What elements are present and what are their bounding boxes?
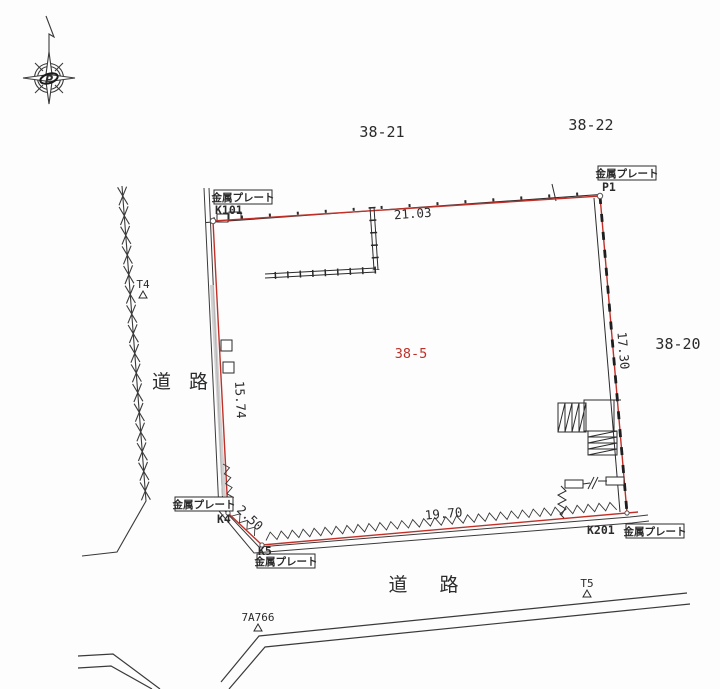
point-label-k201: K201 [587,523,615,537]
parcel-label-38-21: 38-21 [359,123,404,141]
parcel-boundary-red [213,196,638,545]
benchmark-markers: T4 T5 7A766 [136,278,593,631]
benchmark-label-7a766: 7A766 [241,611,274,624]
compass-rose-icon: P [23,16,75,104]
survey-map-canvas: P 38-21 38-22 38-20 38-5 道 路 道 路 [0,0,720,689]
plate-label-k101: 金属プレート [211,190,275,204]
fence-structure [558,477,624,518]
point-label-p1: P1 [602,180,616,194]
point-marker-p1 [597,193,602,198]
parcel-label-38-5: 38-5 [395,346,428,362]
survey-point-markers [210,193,629,547]
wall-symbol-box [221,340,232,351]
cadastral-survey-map: P 38-21 38-22 38-20 38-5 道 路 道 路 [0,0,720,689]
triangle-marker-icon [583,590,591,597]
north-needle-icon [46,16,54,57]
road-label-left: 道 路 [152,371,214,393]
benchmark-label-t5: T5 [580,577,593,590]
chain-zigzag-icon [558,486,566,518]
parcel-road-edge-lines [204,188,649,553]
measurement-right: 17.30 [614,331,632,370]
parcel-label-38-20: 38-20 [655,335,700,353]
svg-text:金属プレート: 金属プレート [172,498,236,511]
road-label-bottom: 道 路 [388,574,471,596]
triangle-marker-icon [139,291,147,298]
parcel-label-38-22: 38-22 [568,116,613,134]
wall-symbol-box [223,362,234,373]
measurement-bottom: 19.70 [424,504,463,522]
plate-label-p1: 金属プレート [595,166,659,180]
svg-text:金属プレート: 金属プレート [595,167,659,180]
compass-logo: P [45,73,53,86]
road-edge-left-hatched [82,186,150,556]
point-marker-k101 [210,218,215,223]
svg-text:金属プレート: 金属プレート [623,525,687,538]
point-label-k4: K4 [217,512,231,526]
plate-label-k4: 金属プレート [172,497,236,511]
point-label-k5: K5 [258,544,272,558]
measurement-top: 21.03 [393,205,432,223]
measurement-left: 15.74 [232,381,249,419]
triangle-marker-icon [254,624,262,631]
benchmark-label-t4: T4 [136,278,150,291]
point-marker-k201 [625,511,629,515]
point-label-k101: K101 [215,203,243,217]
plate-label-k201: 金属プレート [623,524,687,538]
road-edge-bottom [78,593,690,689]
